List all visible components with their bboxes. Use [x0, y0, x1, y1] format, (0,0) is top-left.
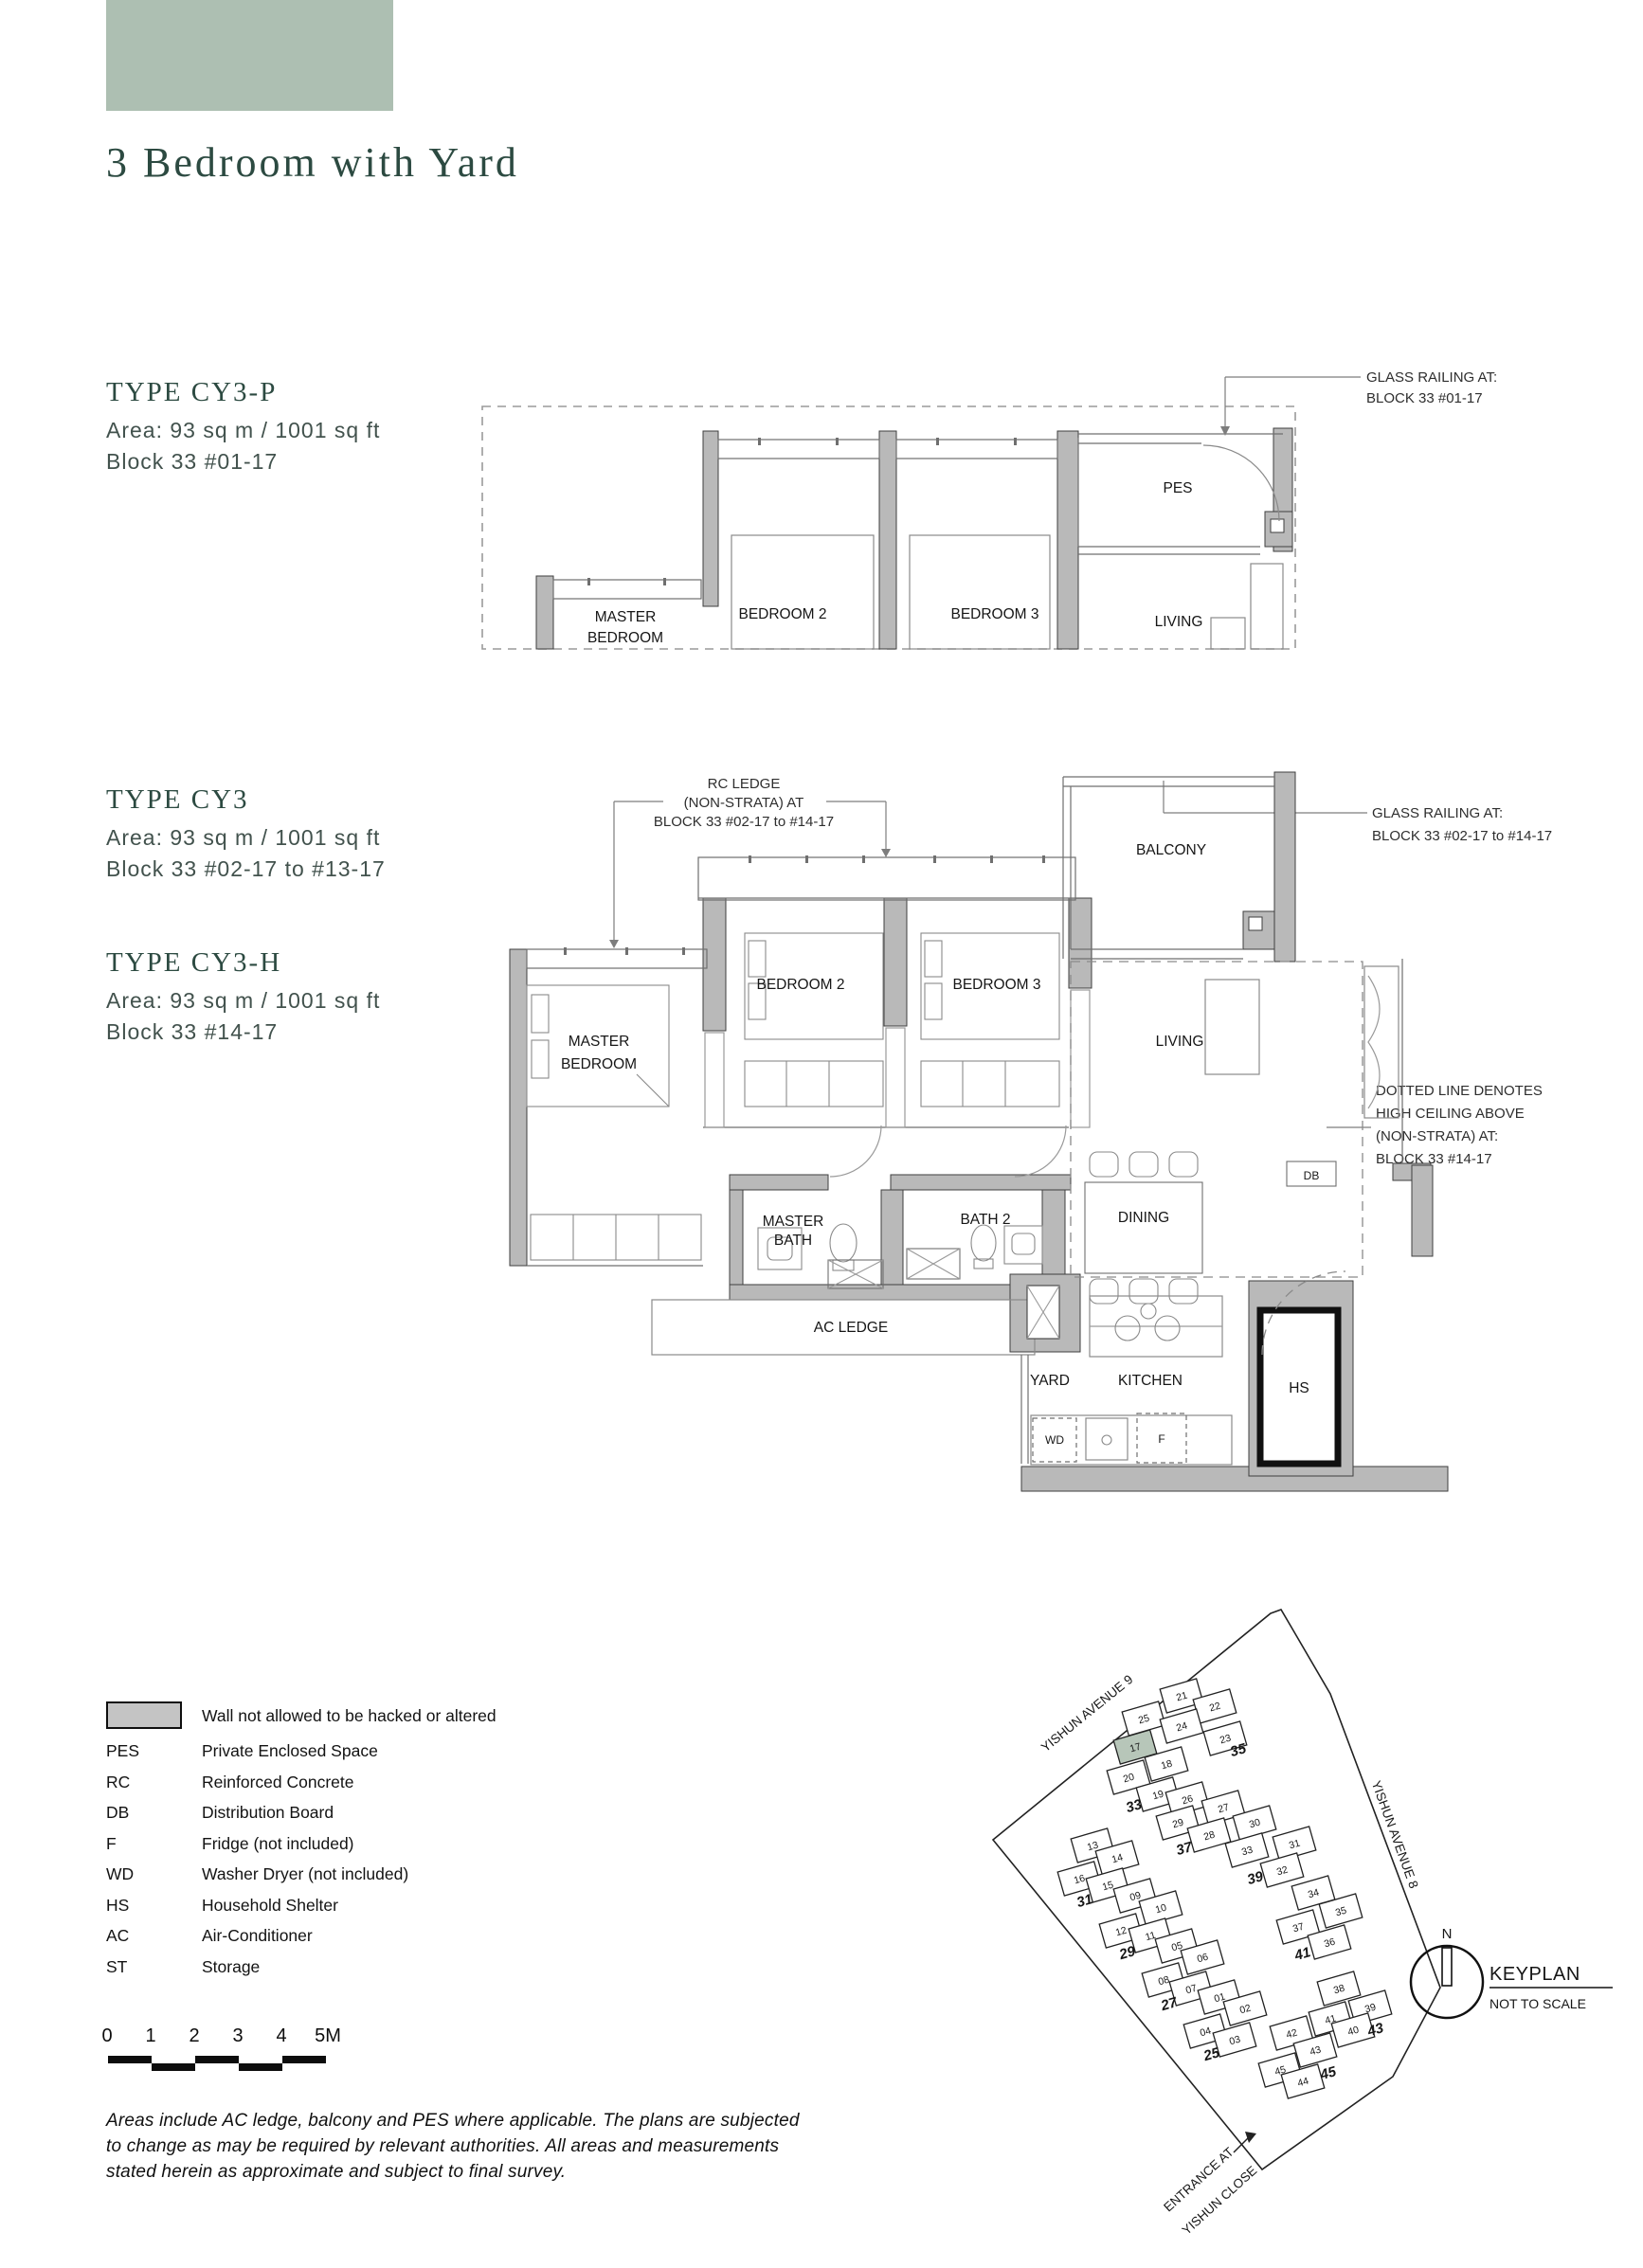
- legend-row-wd: WD Washer Dryer (not included): [106, 1861, 637, 1892]
- wall-swatch-label: Wall not allowed to be hacked or altered: [202, 1706, 497, 1726]
- legend-abbr: RC: [106, 1773, 130, 1792]
- room-label-db: DB: [1304, 1169, 1320, 1182]
- glass-note-line2: BLOCK 33 #01-17: [1366, 390, 1483, 406]
- room-label-hs: HS: [1289, 1380, 1309, 1396]
- scale-tick: 3: [219, 2025, 257, 2047]
- glass-railing-annotation-cy3p: GLASS RAILING AT: BLOCK 33 #01-17: [1220, 369, 1497, 436]
- floorplan-top-cy3p: MASTER BEDROOM BEDROOM 2 BEDROOM 3 LIVIN…: [0, 360, 1643, 654]
- legend-row-rc: RC Reinforced Concrete: [106, 1769, 637, 1800]
- keyplan-subtitle: NOT TO SCALE: [1490, 1996, 1586, 2011]
- accent-block: [106, 0, 393, 111]
- legend-label: Storage: [202, 1957, 260, 1977]
- keyplan-block-label: 41: [1291, 1944, 1312, 1964]
- legend-abbr: ST: [106, 1957, 127, 1977]
- plan-top-window-ticks: [587, 438, 1017, 585]
- room-label-masterbath-2: BATH: [774, 1233, 812, 1249]
- floorplan-page: 3 Bedroom with Yard TYPE CY3-P Area: 93 …: [0, 0, 1643, 2268]
- scale-tick: 1: [132, 2025, 170, 2047]
- room-label-master-2: BEDROOM: [587, 630, 663, 646]
- scale-segment: [108, 2056, 152, 2063]
- legend-abbr: PES: [106, 1741, 139, 1761]
- legend-label: Air-Conditioner: [202, 1926, 313, 1946]
- room-label-bath2: BATH 2: [960, 1212, 1010, 1228]
- ceiling-note-line1: DOTTED LINE DENOTES: [1376, 1083, 1543, 1099]
- room-label-master-2: BEDROOM: [561, 1056, 637, 1072]
- room-label-f: F: [1158, 1432, 1165, 1446]
- legend-row-pes: PES Private Enclosed Space: [106, 1737, 637, 1769]
- keyplan-title: KEYPLAN: [1490, 1964, 1580, 1985]
- compass-north-letter: N: [1442, 1926, 1453, 1942]
- room-label-master-1: MASTER: [569, 1034, 630, 1050]
- legend-abbr: DB: [106, 1803, 129, 1823]
- scale-segment: [195, 2056, 239, 2063]
- glass-note-line2: BLOCK 33 #02-17 to #14-17: [1372, 828, 1552, 844]
- plan-main-window-ticks: [564, 855, 1045, 955]
- street-label-yishun-ave-8: YISHUN AVENUE 8: [1369, 1779, 1421, 1891]
- legend-label: Private Enclosed Space: [202, 1741, 378, 1761]
- legend-abbr: F: [106, 1834, 117, 1854]
- room-label-living: LIVING: [1155, 614, 1203, 630]
- legend-label: Household Shelter: [202, 1896, 338, 1916]
- scale-segment: [239, 2063, 282, 2071]
- glass-note-line1: GLASS RAILING AT:: [1372, 805, 1503, 821]
- leader-arrow: [609, 940, 619, 948]
- scale-bar: 0 1 2 3 4 5M: [106, 2025, 390, 2082]
- legend-label: Washer Dryer (not included): [202, 1864, 408, 1884]
- high-ceiling-annotation: DOTTED LINE DENOTES HIGH CEILING ABOVE (…: [1327, 1083, 1543, 1167]
- room-label-wd: WD: [1045, 1433, 1064, 1447]
- room-label-bedroom2: BEDROOM 2: [738, 606, 826, 622]
- legend-row-db: DB Distribution Board: [106, 1799, 637, 1830]
- room-label-acledge: AC LEDGE: [814, 1320, 888, 1336]
- scale-tick: 5M: [309, 2025, 347, 2047]
- rc-note-line3: BLOCK 33 #02-17 to #14-17: [654, 814, 834, 830]
- room-label-pes: PES: [1163, 480, 1192, 496]
- wall-swatch: [106, 1701, 182, 1729]
- room-label-bedroom3: BEDROOM 3: [950, 606, 1038, 622]
- legend-abbr: WD: [106, 1864, 134, 1884]
- legend-row-st: ST Storage: [106, 1953, 637, 1985]
- rc-note-line2: (NON-STRATA) AT: [684, 795, 804, 811]
- legend-wall-row: Wall not allowed to be hacked or altered: [106, 1700, 637, 1737]
- room-label-balcony: BALCONY: [1136, 842, 1206, 858]
- scale-tick: 4: [262, 2025, 300, 2047]
- entrance-arrow: [1245, 2132, 1256, 2143]
- entrance-label-line2: YISHUN CLOSE: [1180, 2163, 1260, 2236]
- pes-ac-unit: [1271, 519, 1284, 532]
- keyplan-title-block: KEYPLAN NOT TO SCALE: [1490, 1964, 1613, 2011]
- legend-label: Distribution Board: [202, 1803, 334, 1823]
- room-label-master-1: MASTER: [595, 609, 657, 625]
- legend-row-hs: HS Household Shelter: [106, 1892, 637, 1923]
- room-label-kitchen: KITCHEN: [1118, 1373, 1183, 1389]
- scale-segment: [282, 2056, 326, 2063]
- ceiling-note-line3: (NON-STRATA) AT:: [1376, 1128, 1498, 1144]
- scale-tick: 2: [175, 2025, 213, 2047]
- page-title: 3 Bedroom with Yard: [106, 138, 519, 187]
- legend-abbr: HS: [106, 1896, 129, 1916]
- glass-note-line1: GLASS RAILING AT:: [1366, 369, 1497, 386]
- legend-row-ac: AC Air-Conditioner: [106, 1922, 637, 1953]
- scale-tick: 0: [88, 2025, 126, 2047]
- room-label-yard: YARD: [1030, 1373, 1070, 1389]
- disclaimer-text: Areas include AC ledge, balcony and PES …: [106, 2109, 815, 2186]
- scale-segment: [152, 2063, 195, 2071]
- legend-label: Reinforced Concrete: [202, 1773, 354, 1792]
- legend-label: Fridge (not included): [202, 1834, 354, 1854]
- floorplan-main-cy3: RC LEDGE (NON-STRATA) AT BLOCK 33 #02-17…: [0, 739, 1643, 1525]
- room-label-bedroom3: BEDROOM 3: [952, 977, 1040, 993]
- balcony-ac-unit: [1249, 917, 1262, 930]
- room-label-dining: DINING: [1118, 1210, 1169, 1226]
- rc-note-line1: RC LEDGE: [708, 776, 781, 792]
- leader-arrow: [881, 849, 891, 857]
- room-label-masterbath-1: MASTER: [763, 1214, 824, 1230]
- legend-row-f: F Fridge (not included): [106, 1830, 637, 1862]
- room-label-living: LIVING: [1156, 1034, 1204, 1050]
- keyplan: 2122252423351718201933262729283730313332…: [948, 1582, 1643, 2236]
- legend: Wall not allowed to be hacked or altered…: [106, 1700, 637, 1984]
- legend-abbr: AC: [106, 1926, 129, 1946]
- room-label-bedroom2: BEDROOM 2: [756, 977, 844, 993]
- glass-railing-annotation-main: GLASS RAILING AT: BLOCK 33 #02-17 to #14…: [1164, 781, 1552, 844]
- keyplan-clusters: 2122252423351718201933262729283730313332…: [1057, 1679, 1392, 2098]
